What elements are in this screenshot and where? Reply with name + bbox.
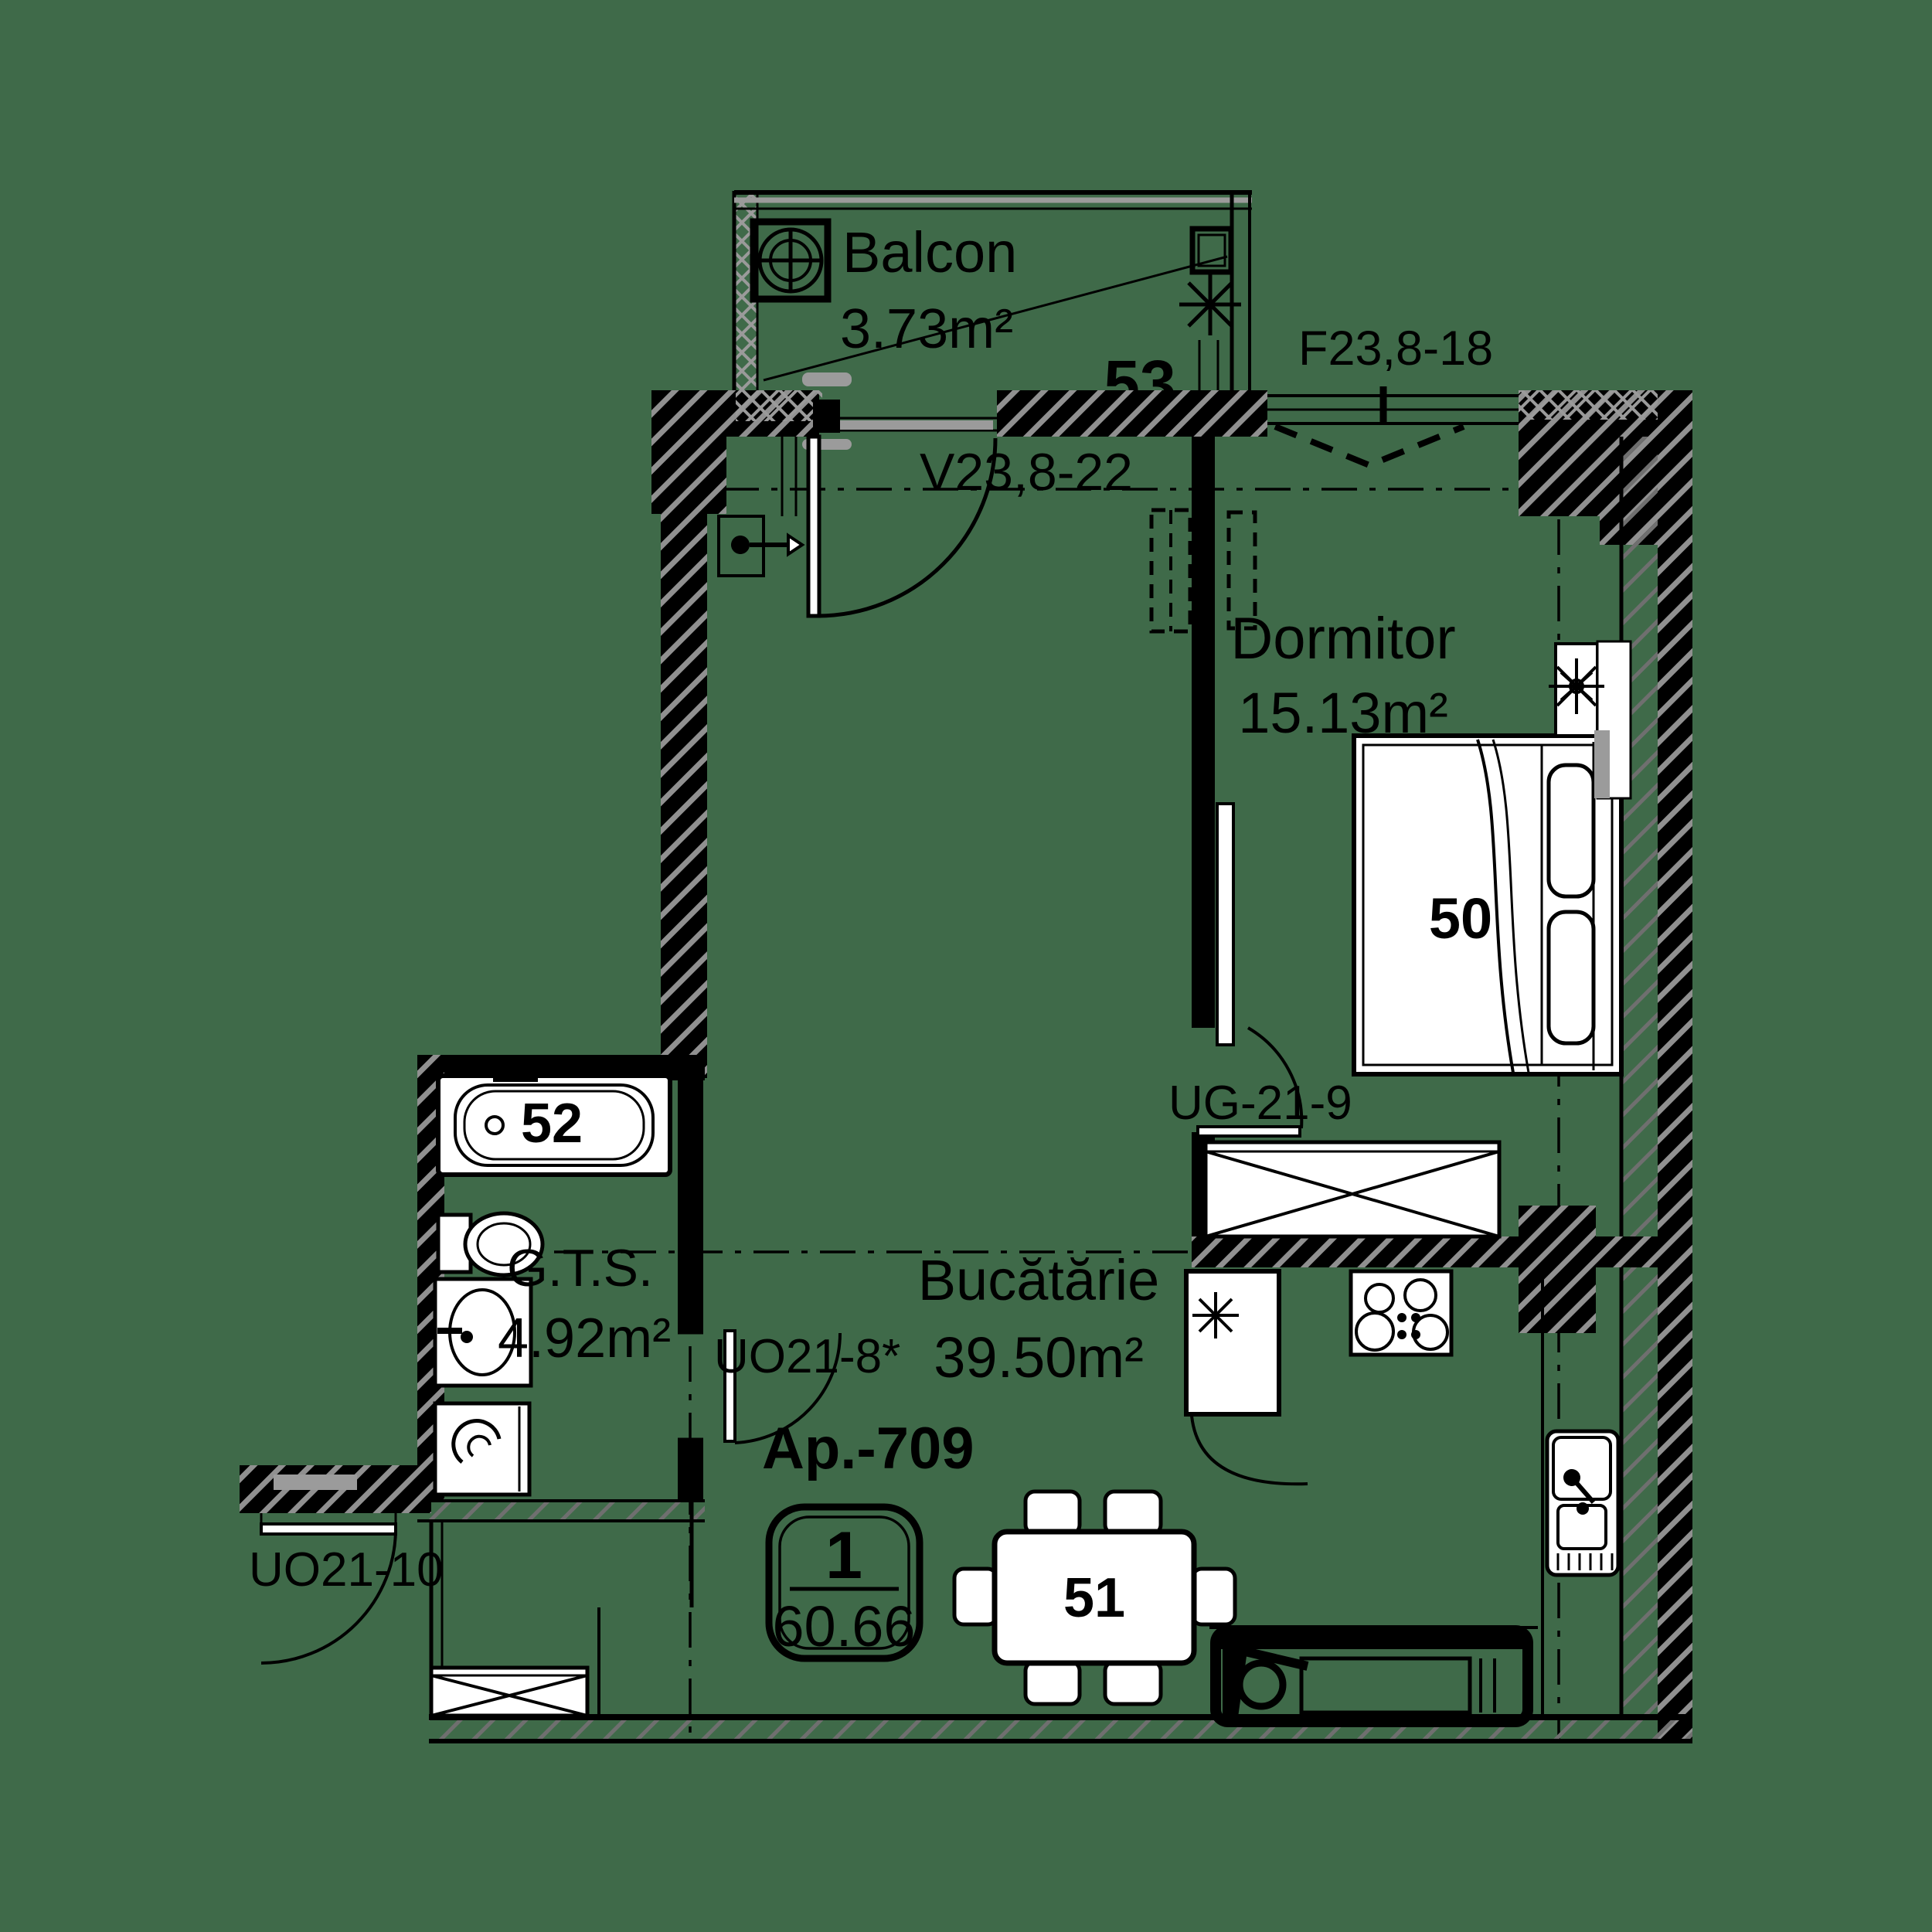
shower-mixer-icon [493,1070,538,1082]
chair [954,1569,997,1624]
chair [1105,1662,1161,1704]
fridge-door-swing [1192,1416,1308,1484]
pillow [1549,912,1594,1043]
bathroom-name: G.T.S. [507,1239,653,1298]
bathroom-right-wall-stub [678,1439,703,1501]
bedroom-name: Dormitor [1230,606,1455,672]
bedroom-number: 50 [1429,886,1492,951]
window-opening-indicator [1275,427,1464,465]
bedroom-window-code: F23,8-18 [1298,321,1493,376]
stove-icon [1351,1271,1451,1355]
kitchen-sink-icon [1547,1431,1618,1575]
chair [1026,1492,1080,1534]
bedroom-door-code: UG-21-9 [1168,1077,1352,1130]
bathroom-right-wall [678,1080,703,1333]
floor-plan: Balcon 3.73m² 53 [0,0,1932,1932]
entry-door-code: UO21-10 [249,1543,444,1597]
kitchen-number: 51 [1063,1567,1125,1629]
chair [1026,1662,1080,1704]
right-wall-lining-kitchen [1621,1267,1658,1716]
fridge-snowflake-icon [1192,1292,1239,1338]
bathroom-bottom-band [417,1501,705,1521]
bathroom-area: 4.92m² [498,1308,671,1369]
entry-door-leaf [261,1524,396,1534]
right-wall-lining-bedroom [1621,437,1658,1236]
hall-closet-icon [431,1668,587,1716]
partition-bedroom-upper [1192,437,1215,1028]
sofa-icon [1209,1628,1538,1722]
balcony-door-code: V23,8-22 [920,443,1133,502]
chair [1105,1492,1161,1534]
bathroom-door-code: UO21-8* [714,1330,900,1383]
balcony-name: Balcon [842,220,1017,284]
badge-rooms-count: 1 [825,1519,862,1593]
washing-machine-icon [435,1403,529,1495]
entry-stub-accent [274,1475,357,1490]
pillow [1549,765,1594,896]
vent-grille-icon [753,222,828,299]
wardrobe-icon [1206,1142,1499,1236]
top-wall-crossband-left [736,390,822,421]
balcony-area: 3.73m² [840,298,1013,360]
bedroom-window [1267,386,1519,465]
floor-plan-canvas: Balcon 3.73m² 53 [0,0,1932,1932]
kitchen-area: 39.50m² [934,1325,1143,1389]
bedroom-area: 15.13m² [1238,681,1447,745]
bathroom-number: 52 [521,1093,583,1155]
chair [1192,1569,1235,1624]
tv-console [1217,804,1233,1045]
badge-total-area: 60.66 [772,1594,915,1658]
fridge-icon [1186,1271,1308,1484]
balcony-door-leaf [808,437,819,616]
apartment-label: Ap.-709 [762,1416,975,1481]
kitchen-name: Bucătărie [918,1248,1160,1312]
vent-detail [719,437,802,576]
apartment-badge: 1 60.66 [769,1507,920,1658]
balcony-door-threshold [823,420,993,430]
